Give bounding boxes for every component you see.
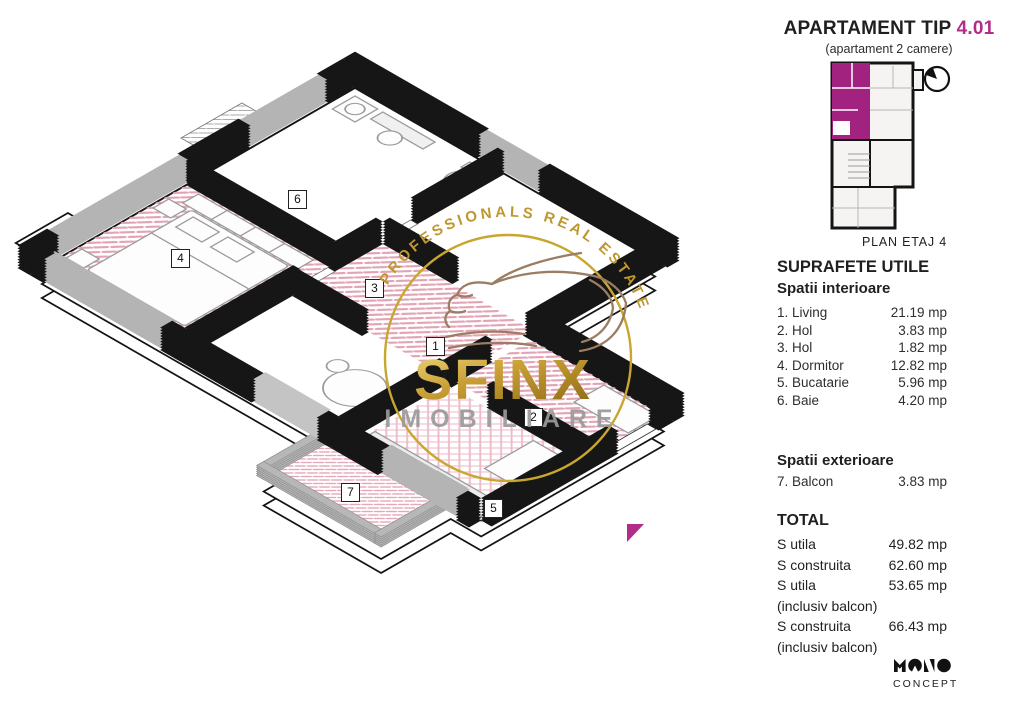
apartment-subtitle: (apartament 2 camere) xyxy=(775,42,1003,56)
row-value: 49.82 mp xyxy=(889,534,947,555)
apartment-title-block: APARTAMENT TIP 4.01 (apartament 2 camere… xyxy=(775,18,1003,56)
table-row: S utila 49.82 mp xyxy=(777,534,947,555)
row-label: S construita xyxy=(777,555,851,576)
logo-glyphs xyxy=(894,659,951,673)
interior-surfaces-table: SUPRAFETE UTILE Spatii interioare 1. Liv… xyxy=(777,258,947,409)
row-label: 2. Hol xyxy=(777,322,812,340)
table-row: 6. Baie 4.20 mp xyxy=(777,392,947,410)
room-label-4: 4 xyxy=(171,249,190,268)
room-label-5: 5 xyxy=(484,499,503,518)
table-row: 5. Bucatarie 5.96 mp xyxy=(777,374,947,392)
row-note: (inclusiv balcon) xyxy=(777,637,947,658)
table-row: 7. Balcon 3.83 mp xyxy=(777,473,947,491)
row-value: 53.65 mp xyxy=(889,575,947,596)
row-label: 3. Hol xyxy=(777,339,812,357)
row-note: (inclusiv balcon) xyxy=(777,596,947,617)
table-row: S construita 66.43 mp xyxy=(777,616,947,637)
row-value: 3.83 mp xyxy=(898,473,947,491)
table-row: 4. Dormitor 12.82 mp xyxy=(777,357,947,375)
exterior-title: Spatii exterioare xyxy=(777,452,947,469)
unit-bath xyxy=(833,121,850,135)
row-value: 5.96 mp xyxy=(898,374,947,392)
room-label-6: 6 xyxy=(288,190,307,209)
logo-sub-text: CONCEPT xyxy=(893,678,958,690)
apartment-type-label: APARTAMENT TIP xyxy=(784,18,951,39)
floor-location-map: PLAN ETAJ 4 xyxy=(818,58,978,258)
surfaces-title: SUPRAFETE UTILE xyxy=(777,258,947,277)
row-value: 1.82 mp xyxy=(898,339,947,357)
table-row: S utila 53.65 mp xyxy=(777,575,947,596)
row-label: S utila xyxy=(777,575,816,596)
row-label: S construita xyxy=(777,616,851,637)
page: 1 2 3 4 5 6 7 PROFESSIONALS REAL ESTATE … xyxy=(0,0,1015,720)
row-label: 6. Baie xyxy=(777,392,819,410)
minimap-caption: PLAN ETAJ 4 xyxy=(862,235,947,249)
mono-concept-logo: CONCEPT xyxy=(892,656,966,698)
row-value: 66.43 mp xyxy=(889,616,947,637)
table-row: S construita 62.60 mp xyxy=(777,555,947,576)
entrance-marker-icon xyxy=(627,524,644,542)
row-label: 4. Dormitor xyxy=(777,357,844,375)
row-label: 7. Balcon xyxy=(777,473,833,491)
row-value: 62.60 mp xyxy=(889,555,947,576)
row-label: 5. Bucatarie xyxy=(777,374,849,392)
row-label: S utila xyxy=(777,534,816,555)
total-title: TOTAL xyxy=(777,512,947,530)
page-title: APARTAMENT TIP 4.01 xyxy=(775,18,1003,40)
row-label: 1. Living xyxy=(777,304,827,322)
room-label-2: 2 xyxy=(524,408,543,427)
info-panel: APARTAMENT TIP 4.01 (apartament 2 camere… xyxy=(770,0,1005,720)
table-row: 3. Hol 1.82 mp xyxy=(777,339,947,357)
table-row: 1. Living 21.19 mp xyxy=(777,304,947,322)
row-value: 4.20 mp xyxy=(898,392,947,410)
table-row: 2. Hol 3.83 mp xyxy=(777,322,947,340)
room-label-7: 7 xyxy=(341,483,360,502)
totals-table: TOTAL S utila 49.82 mp S construita 62.6… xyxy=(777,512,947,657)
apartment-number: 4.01 xyxy=(957,18,995,39)
row-value: 21.19 mp xyxy=(891,304,947,322)
interior-title: Spatii interioare xyxy=(777,280,947,297)
row-value: 12.82 mp xyxy=(891,357,947,375)
exterior-surfaces-table: Spatii exterioare 7. Balcon 3.83 mp xyxy=(777,452,947,491)
room-label-1: 1 xyxy=(426,337,445,356)
compass-icon xyxy=(925,67,949,91)
building-notch xyxy=(913,70,923,90)
room-label-3: 3 xyxy=(365,279,384,298)
row-value: 3.83 mp xyxy=(898,322,947,340)
